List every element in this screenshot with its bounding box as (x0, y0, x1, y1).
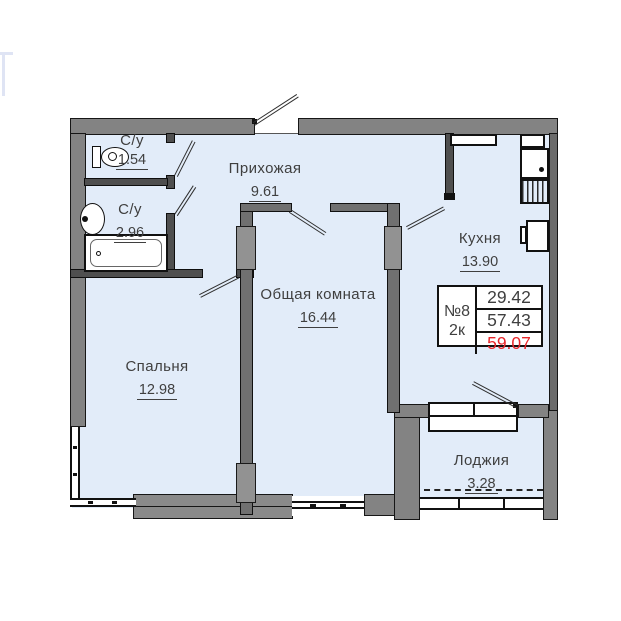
room-living: Общая комната 16.44 (253, 286, 383, 328)
window-tick (73, 446, 77, 449)
room-label: С/у (120, 132, 144, 149)
vent-shaft-horizontal (450, 134, 497, 146)
loggia-glazing (420, 497, 543, 510)
door-jamb-living-left (236, 226, 256, 270)
room-hallway: Прихожая 9.61 (195, 160, 335, 202)
bottom-pier-lower (133, 506, 293, 519)
balcony-block-divider (473, 404, 475, 416)
bedroom-bottom-window (70, 498, 136, 507)
drying-rack-icon (520, 179, 549, 204)
room-wc-small: С/у 1.54 (98, 132, 166, 170)
kitchen-tap-icon (539, 167, 544, 172)
edge-artifact-top (0, 52, 13, 55)
vent-shaft-square (520, 134, 545, 148)
unit-id-cell: №8 2к (439, 287, 477, 354)
wall-right (549, 133, 558, 412)
edge-artifact (2, 54, 5, 96)
glazing-divider (503, 498, 505, 509)
kitchen-loggia-wall-right (518, 404, 549, 418)
room-area: 1.54 (116, 152, 148, 170)
area-value-2: 57.43 (477, 310, 541, 333)
bathtub-drain-icon (96, 251, 101, 256)
room-area: 9.61 (249, 184, 281, 202)
room-label: Общая комната (260, 286, 375, 303)
glazing-divider (458, 498, 460, 509)
wall-between-bathrooms (84, 178, 168, 186)
unit-number: №8 (444, 302, 470, 321)
room-area: 2.96 (114, 225, 146, 243)
wall-top-right (298, 118, 558, 135)
room-label: Кухня (459, 230, 501, 247)
door-jamb-living-bottom (236, 463, 256, 503)
room-label: С/у (118, 201, 142, 218)
floor-plan: С/у 1.54 С/у 2.96 Прихожая 9.61 Кухня 13… (0, 0, 621, 621)
room-area: 16.44 (298, 310, 338, 328)
room-label: Лоджия (454, 452, 510, 469)
wall-living-top-left (240, 203, 292, 212)
room-area: 3.28 (465, 476, 497, 494)
room-label: Прихожая (229, 160, 302, 177)
wall-kitchen-west-cap (444, 193, 455, 200)
room-label: Спальня (125, 358, 188, 375)
area-value-total: 59.07 (477, 333, 541, 354)
loggia-left-column (394, 410, 420, 520)
wall-bath-vertical-a (166, 133, 175, 143)
kitchen-sink-icon (520, 148, 549, 179)
room-area: 13.90 (460, 254, 500, 272)
window-tick (73, 473, 77, 476)
room-area: 12.98 (137, 382, 177, 400)
unit-info-box: №8 2к 29.42 57.43 59.07 (437, 285, 543, 347)
area-value-1: 29.42 (477, 287, 541, 310)
window-tick (310, 504, 316, 507)
living-window-glazing (292, 501, 364, 509)
room-loggia: Лоджия 3.28 (424, 452, 539, 494)
loggia-right-column (543, 410, 558, 520)
unit-type: 2к (449, 321, 465, 340)
room-bedroom: Спальня 12.98 (102, 358, 212, 400)
door-jamb-living-right (384, 226, 402, 270)
window-tick (112, 501, 117, 504)
window-tick (88, 501, 93, 504)
room-kitchen: Кухня 13.90 (425, 230, 535, 272)
sink-tap-icon (82, 216, 88, 222)
unit-areas-cell: 29.42 57.43 59.07 (477, 287, 541, 354)
bedroom-left-window (70, 427, 80, 500)
room-wc-large: С/у 2.96 (95, 201, 165, 243)
window-tick (340, 504, 346, 507)
